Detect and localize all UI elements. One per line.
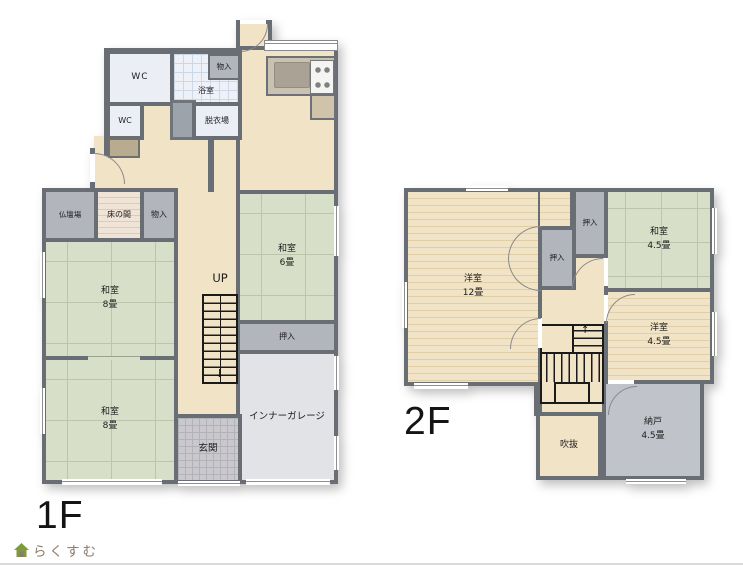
washitsu45-name: 和室 xyxy=(650,226,668,240)
oshiire-2f-a-label: 押入 xyxy=(550,252,565,264)
window xyxy=(402,282,407,328)
room-oshiire-2f-a: 押入 xyxy=(538,226,576,290)
nando-name: 納戸 xyxy=(644,416,662,430)
room-washitsu45: 和室 4.5畳 xyxy=(604,188,714,292)
room-oshiire-2f-b: 押入 xyxy=(572,188,608,258)
stairs-2f-landing xyxy=(554,382,590,404)
room-yoshitsu12: 洋室 12畳 xyxy=(404,188,542,386)
door-gap xyxy=(604,258,608,286)
stairs-2f-up-arrow-icon: ↑ xyxy=(581,326,589,336)
bottom-divider xyxy=(0,563,743,565)
window xyxy=(712,312,717,356)
stairs-2f-mid-flight xyxy=(540,352,604,382)
floorplan-page: WC 浴室 物入 WC 脱衣場 仏壇場 床の間 xyxy=(0,0,743,567)
floor2-plan: 洋室 12畳 押入 押入 和室 4.5畳 洋室 4.5畳 納戸 4.5畳 吹抜 xyxy=(0,0,743,567)
floor1-label: 1F xyxy=(36,494,84,538)
yoshitsu12-size: 12畳 xyxy=(463,287,483,301)
nando-size: 4.5畳 xyxy=(641,430,664,444)
oshiire-2f-b-label: 押入 xyxy=(583,217,598,229)
yoshitsu45-name: 洋室 xyxy=(650,322,668,336)
window xyxy=(626,479,686,484)
window xyxy=(466,186,508,191)
window xyxy=(712,208,717,254)
window xyxy=(414,383,468,389)
house-icon xyxy=(14,543,29,558)
yoshitsu12-name: 洋室 xyxy=(464,273,482,287)
logo-text: らくすむ xyxy=(33,540,99,560)
yoshitsu12-extension xyxy=(540,192,572,226)
floor2-label: 2F xyxy=(404,400,452,444)
site-logo: らくすむ xyxy=(14,540,99,560)
void-label: 吹抜 xyxy=(560,439,578,453)
yoshitsu45-size: 4.5畳 xyxy=(647,336,670,350)
washitsu45-size: 4.5畳 xyxy=(647,240,670,254)
door-gap xyxy=(608,380,634,384)
room-void: 吹抜 xyxy=(536,412,602,480)
